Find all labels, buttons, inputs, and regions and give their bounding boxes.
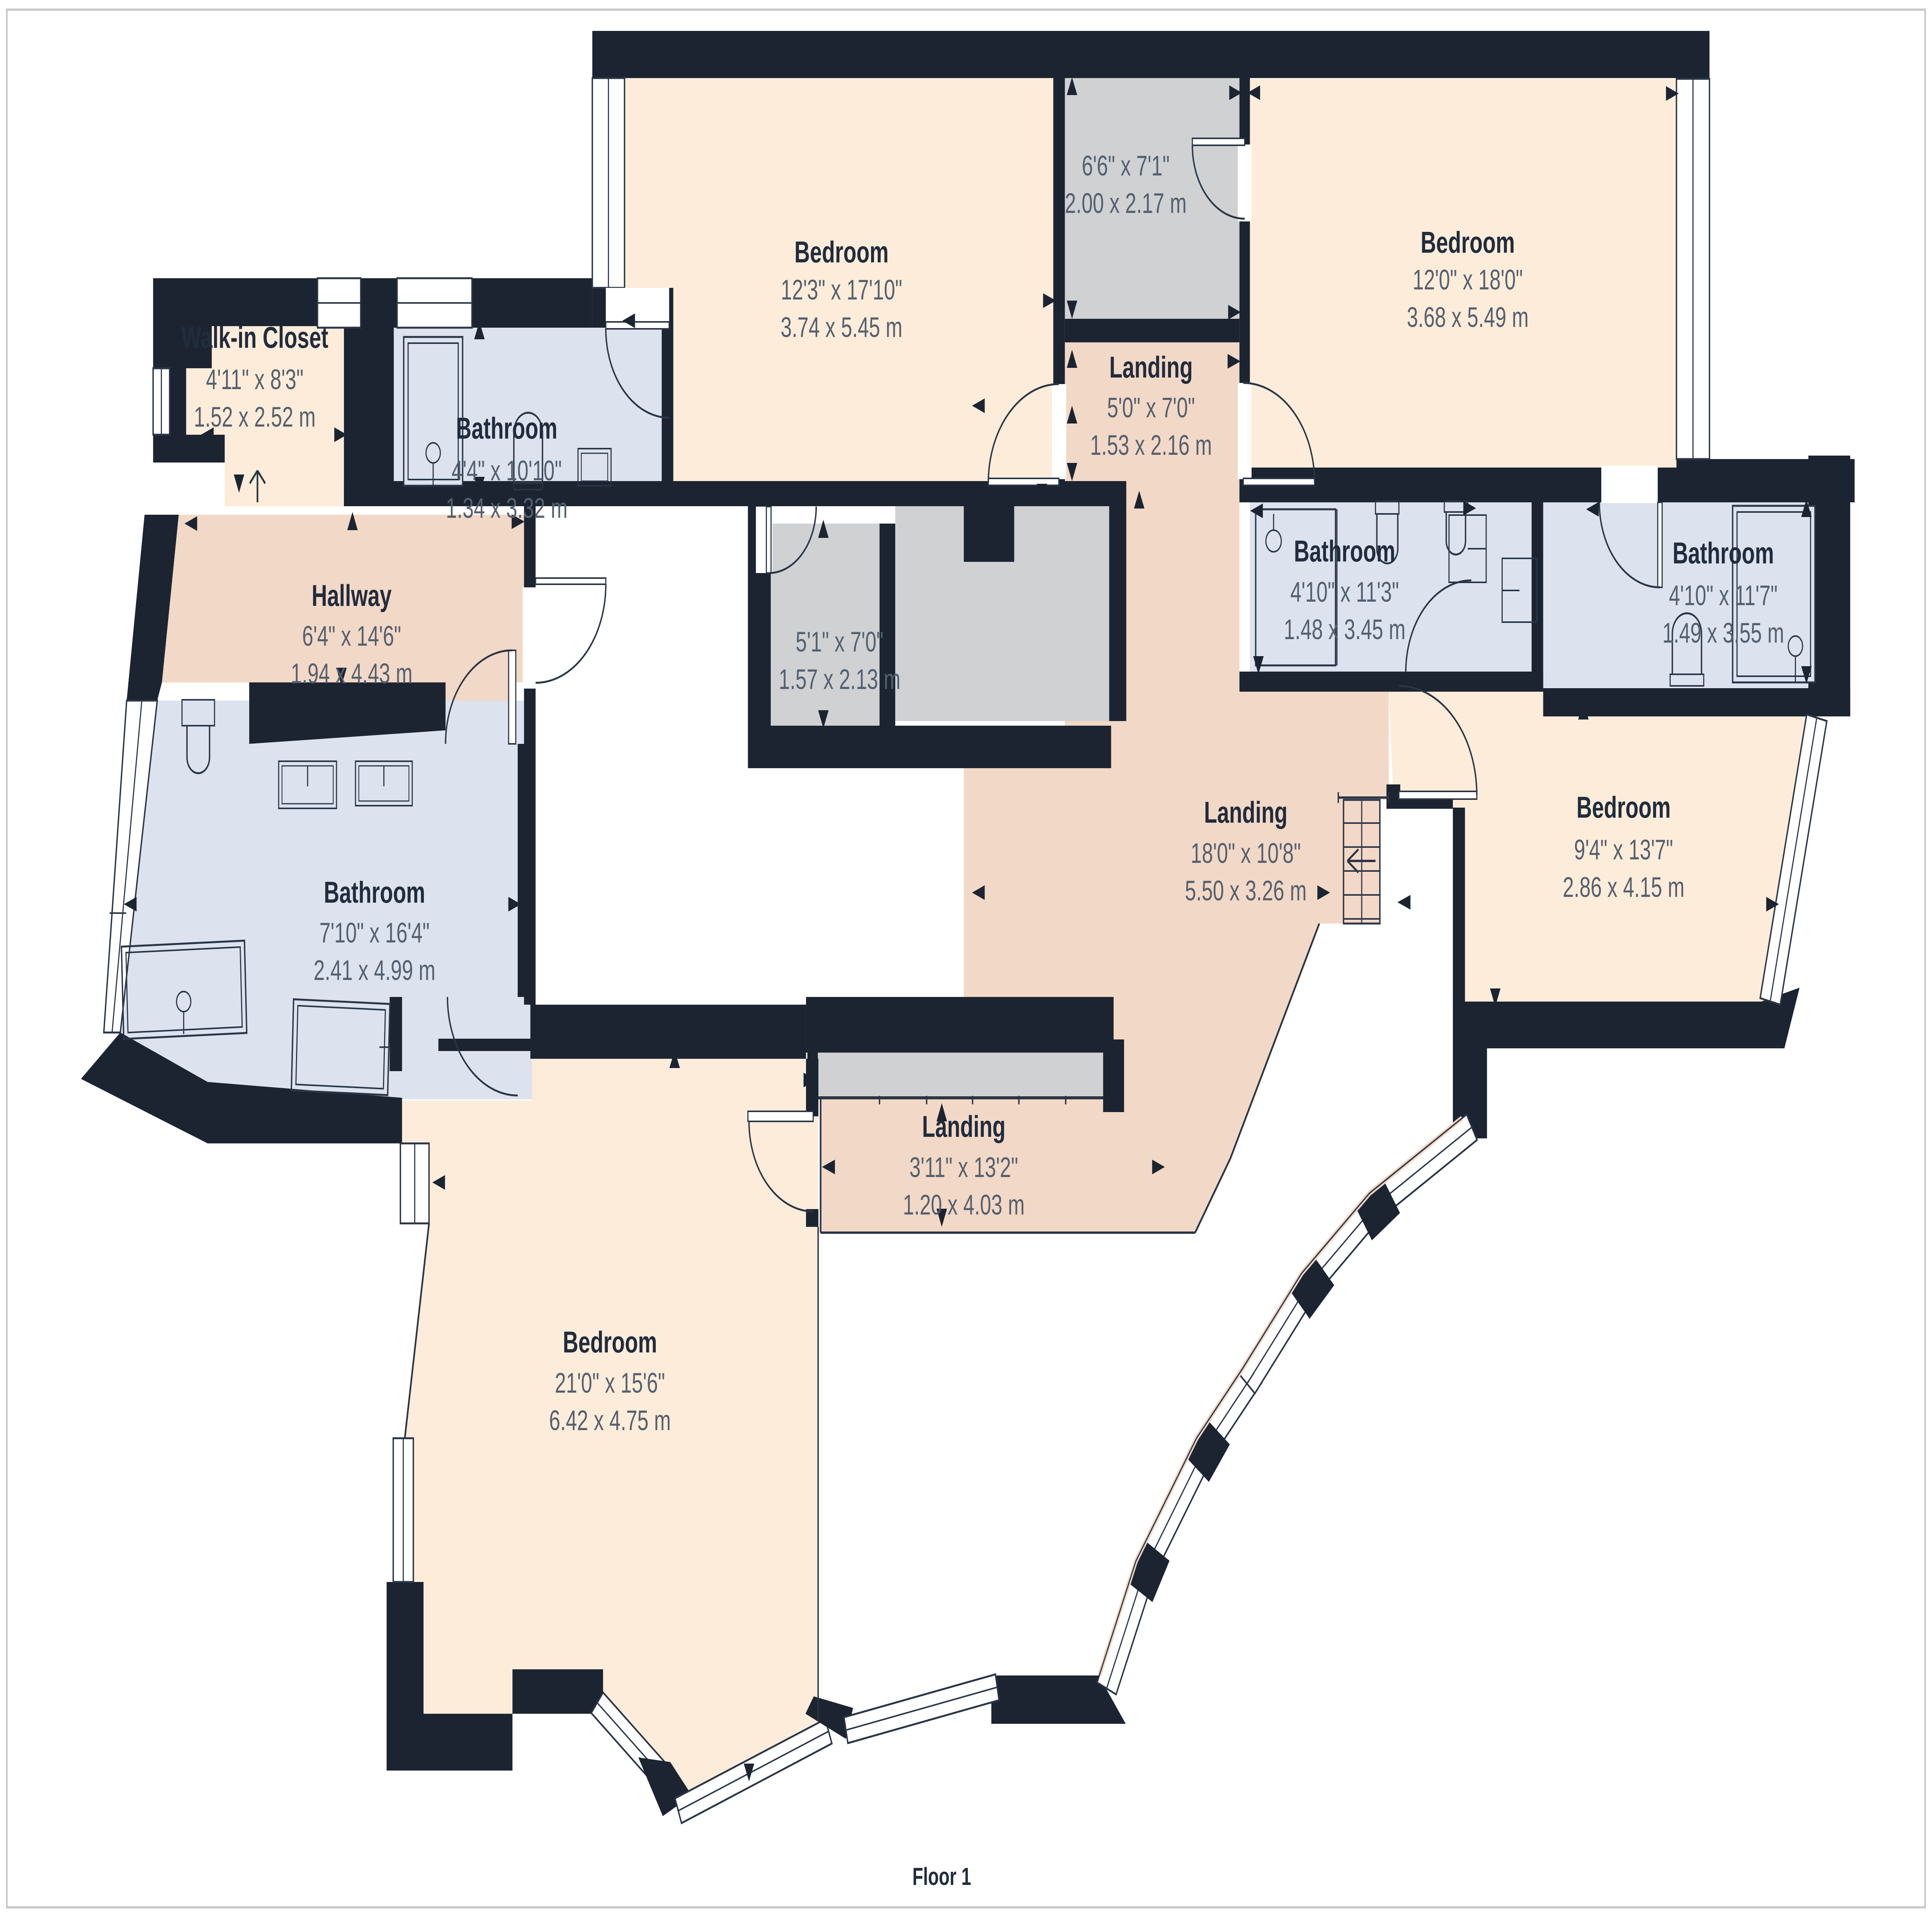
svg-text:5'0" x 7'0": 5'0" x 7'0" bbox=[1107, 393, 1195, 424]
svg-text:4'11" x 8'3": 4'11" x 8'3" bbox=[206, 364, 303, 396]
svg-text:Landing: Landing bbox=[1109, 351, 1193, 384]
svg-text:6.42 x 4.75 m: 6.42 x 4.75 m bbox=[549, 1405, 671, 1437]
svg-text:1.52 x 2.52 m: 1.52 x 2.52 m bbox=[194, 402, 316, 433]
svg-text:7'10" x 16'4": 7'10" x 16'4" bbox=[320, 918, 430, 949]
svg-text:Bedroom: Bedroom bbox=[563, 1326, 657, 1359]
svg-text:2.00 x 2.17 m: 2.00 x 2.17 m bbox=[1065, 188, 1187, 219]
svg-text:4'4" x 10'10": 4'4" x 10'10" bbox=[452, 456, 562, 487]
svg-text:Walk-in Closet: Walk-in Closet bbox=[181, 321, 328, 354]
svg-text:1.49 x 3.55 m: 1.49 x 3.55 m bbox=[1662, 618, 1784, 649]
svg-text:6'6" x 7'1": 6'6" x 7'1" bbox=[1082, 151, 1170, 182]
svg-text:Bedroom: Bedroom bbox=[1577, 791, 1671, 824]
svg-text:2.86 x 4.15 m: 2.86 x 4.15 m bbox=[1563, 872, 1684, 903]
svg-text:3.74 x 5.45 m: 3.74 x 5.45 m bbox=[781, 312, 902, 344]
svg-text:1.53 x 2.16 m: 1.53 x 2.16 m bbox=[1090, 430, 1212, 461]
svg-text:4'10" x 11'3": 4'10" x 11'3" bbox=[1290, 577, 1399, 608]
svg-text:12'0" x 18'0": 12'0" x 18'0" bbox=[1413, 265, 1523, 296]
svg-text:3'11" x 13'2": 3'11" x 13'2" bbox=[910, 1152, 1018, 1184]
svg-text:4'10" x 11'7": 4'10" x 11'7" bbox=[1669, 580, 1777, 612]
svg-text:3.68 x 5.49 m: 3.68 x 5.49 m bbox=[1407, 302, 1529, 333]
svg-text:5'1" x 7'0": 5'1" x 7'0" bbox=[796, 627, 883, 658]
svg-text:1.20 x 4.03 m: 1.20 x 4.03 m bbox=[903, 1190, 1025, 1221]
svg-text:Bathroom: Bathroom bbox=[1673, 537, 1774, 570]
svg-text:Bathroom: Bathroom bbox=[1294, 535, 1395, 568]
svg-text:Bathroom: Bathroom bbox=[456, 412, 557, 445]
svg-text:2.41 x 4.99 m: 2.41 x 4.99 m bbox=[314, 955, 435, 987]
svg-text:12'3" x 17'10": 12'3" x 17'10" bbox=[781, 275, 902, 306]
svg-text:1.48 x 3.45 m: 1.48 x 3.45 m bbox=[1284, 614, 1405, 646]
svg-text:Bathroom: Bathroom bbox=[324, 876, 425, 909]
svg-text:Hallway: Hallway bbox=[312, 579, 392, 612]
svg-text:Bedroom: Bedroom bbox=[1420, 226, 1515, 259]
svg-text:Landing: Landing bbox=[922, 1110, 1005, 1143]
svg-text:21'0" x 15'6": 21'0" x 15'6" bbox=[555, 1368, 665, 1399]
svg-text:Landing: Landing bbox=[1204, 796, 1287, 829]
svg-text:1.94 x 4.43 m: 1.94 x 4.43 m bbox=[291, 658, 412, 690]
svg-text:9'4" x 13'7": 9'4" x 13'7" bbox=[1574, 835, 1673, 866]
svg-text:Bedroom: Bedroom bbox=[794, 236, 889, 269]
svg-text:6'4" x 14'6": 6'4" x 14'6" bbox=[302, 621, 401, 652]
svg-text:Floor 1: Floor 1 bbox=[912, 1863, 971, 1890]
svg-text:1.57 x 2.13 m: 1.57 x 2.13 m bbox=[779, 664, 900, 696]
svg-text:5.50 x 3.26 m: 5.50 x 3.26 m bbox=[1185, 876, 1306, 907]
svg-text:1.34 x 3.32 m: 1.34 x 3.32 m bbox=[446, 493, 568, 524]
svg-text:18'0" x 10'8": 18'0" x 10'8" bbox=[1190, 838, 1301, 869]
